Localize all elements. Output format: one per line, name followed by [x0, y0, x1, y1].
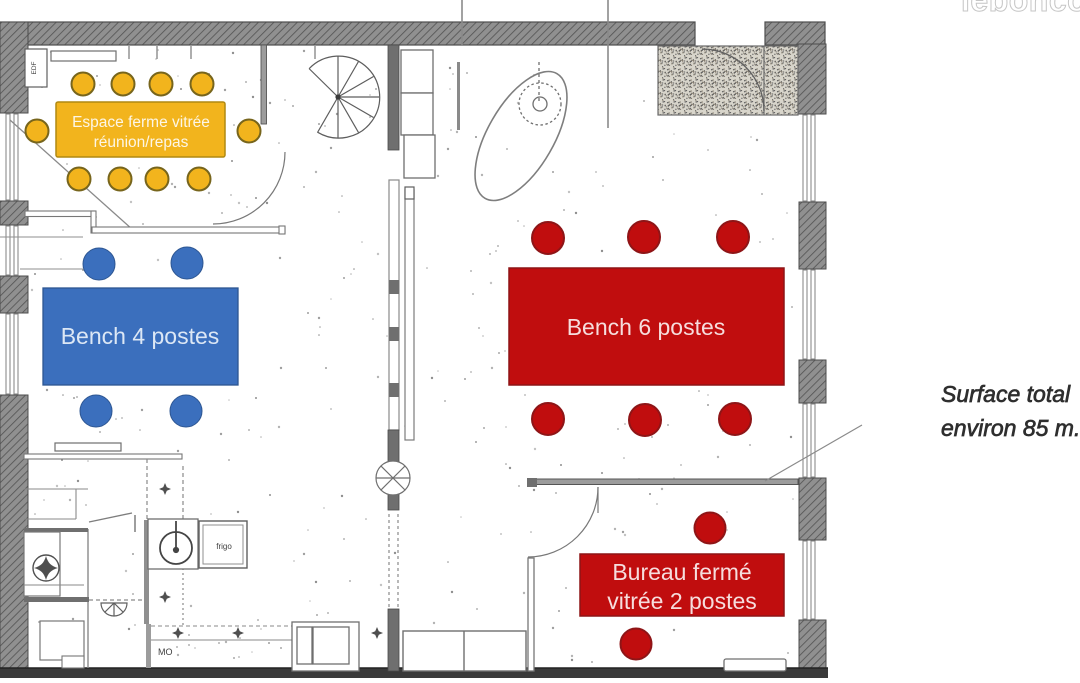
svg-text:leboncoin: leboncoin — [961, 0, 1080, 18]
svg-text:frigo: frigo — [216, 542, 232, 551]
svg-text:Espace ferme vitrée: Espace ferme vitrée — [72, 114, 210, 131]
svg-text:environ 85 m.: environ 85 m. — [941, 415, 1080, 441]
svg-text:EDF: EDF — [31, 61, 38, 74]
svg-text:Surface total: Surface total — [941, 381, 1071, 407]
svg-text:MO: MO — [158, 647, 173, 657]
svg-text:vitrée 2 postes: vitrée 2 postes — [607, 588, 757, 614]
svg-text:réunion/repas: réunion/repas — [94, 134, 189, 151]
svg-text:Bench 4 postes: Bench 4 postes — [61, 323, 220, 349]
svg-text:Bench 6 postes: Bench 6 postes — [567, 314, 726, 340]
svg-text:Bureau fermé: Bureau fermé — [612, 559, 751, 585]
